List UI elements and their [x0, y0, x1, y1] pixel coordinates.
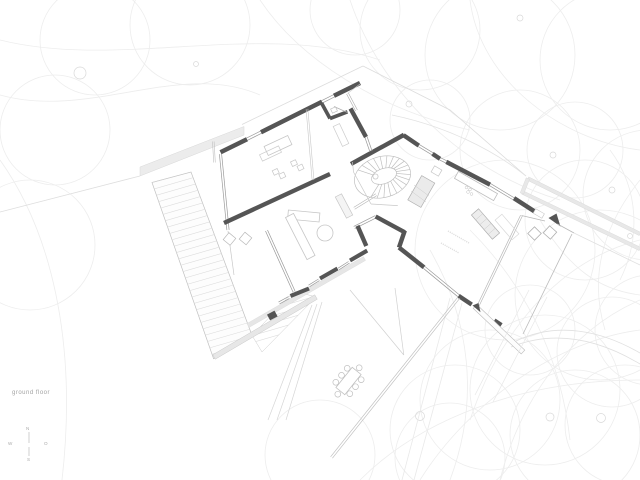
svg-text:ground floor: ground floor: [12, 390, 50, 396]
svg-text:O: O: [44, 441, 48, 446]
svg-text:N: N: [26, 426, 29, 431]
svg-text:W: W: [8, 441, 13, 446]
svg-text:S: S: [27, 457, 30, 462]
